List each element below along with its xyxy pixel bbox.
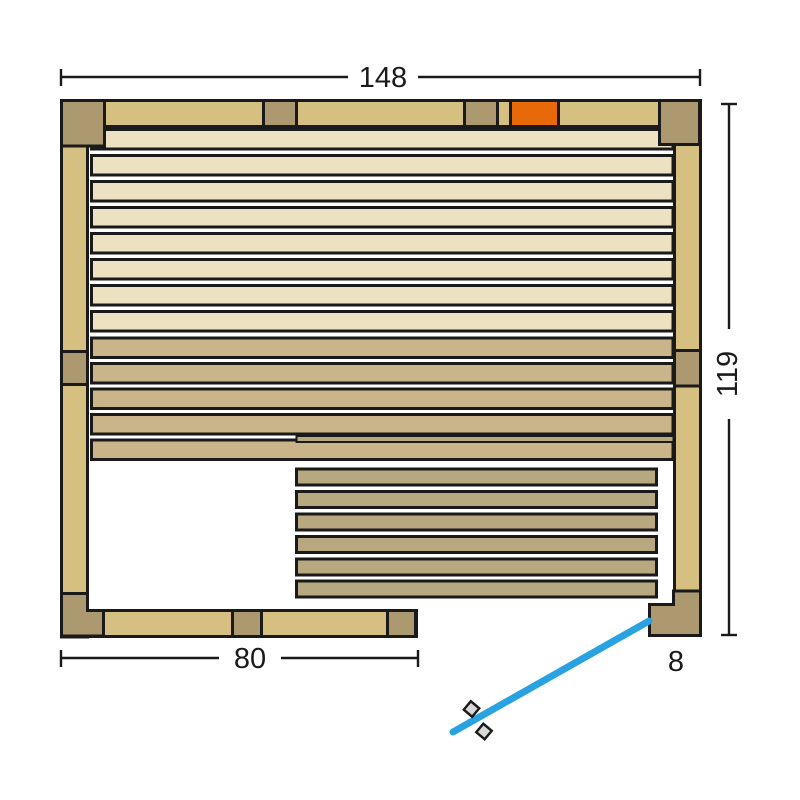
door-handle — [464, 701, 479, 716]
plank — [92, 286, 674, 306]
plank — [92, 182, 674, 202]
plank — [92, 156, 674, 176]
bench-dimension-label: 80 — [234, 643, 266, 675]
plank — [92, 234, 674, 254]
bench-back-strip — [297, 436, 674, 442]
dimension-bottom: 80 — [61, 643, 418, 675]
stud-left-mid — [62, 352, 88, 385]
sauna-floor-plan: 148 119 80 8 — [0, 0, 800, 800]
door-swing-line — [453, 621, 649, 732]
door-frame-label: 8 — [668, 646, 684, 678]
heater-block — [511, 101, 559, 127]
plan-drawing: 148 119 80 8 — [0, 0, 800, 800]
plank — [92, 130, 674, 150]
plank — [92, 208, 674, 228]
door — [453, 621, 649, 739]
stud-top-2 — [465, 101, 498, 127]
corner-post-top-left — [62, 101, 105, 147]
dimension-right: 119 — [712, 104, 744, 635]
corner-post-top-right — [660, 101, 700, 145]
plank — [92, 260, 674, 280]
stud-bottom-end — [388, 611, 416, 637]
bench-plank — [297, 469, 657, 485]
corner-post-bottom-left — [62, 594, 104, 637]
depth-dimension-label: 119 — [712, 351, 744, 397]
width-dimension-label: 148 — [359, 62, 407, 94]
interior-planks-upper — [92, 130, 674, 332]
plank — [92, 415, 674, 435]
stud-right-mid — [675, 351, 701, 387]
plank — [92, 338, 674, 358]
stud-top-1 — [264, 101, 297, 127]
plank — [92, 312, 674, 332]
wall-top — [62, 101, 701, 127]
bench-plank — [297, 492, 657, 508]
bench-plank — [297, 581, 657, 597]
bench-plank — [297, 559, 657, 575]
stud-bottom-mid — [233, 611, 262, 637]
plank — [92, 364, 674, 384]
bench-plank — [297, 537, 657, 553]
door-handle — [476, 724, 491, 739]
bench-plank — [297, 514, 657, 530]
plank — [92, 389, 674, 409]
dimension-top: 148 — [61, 62, 700, 94]
